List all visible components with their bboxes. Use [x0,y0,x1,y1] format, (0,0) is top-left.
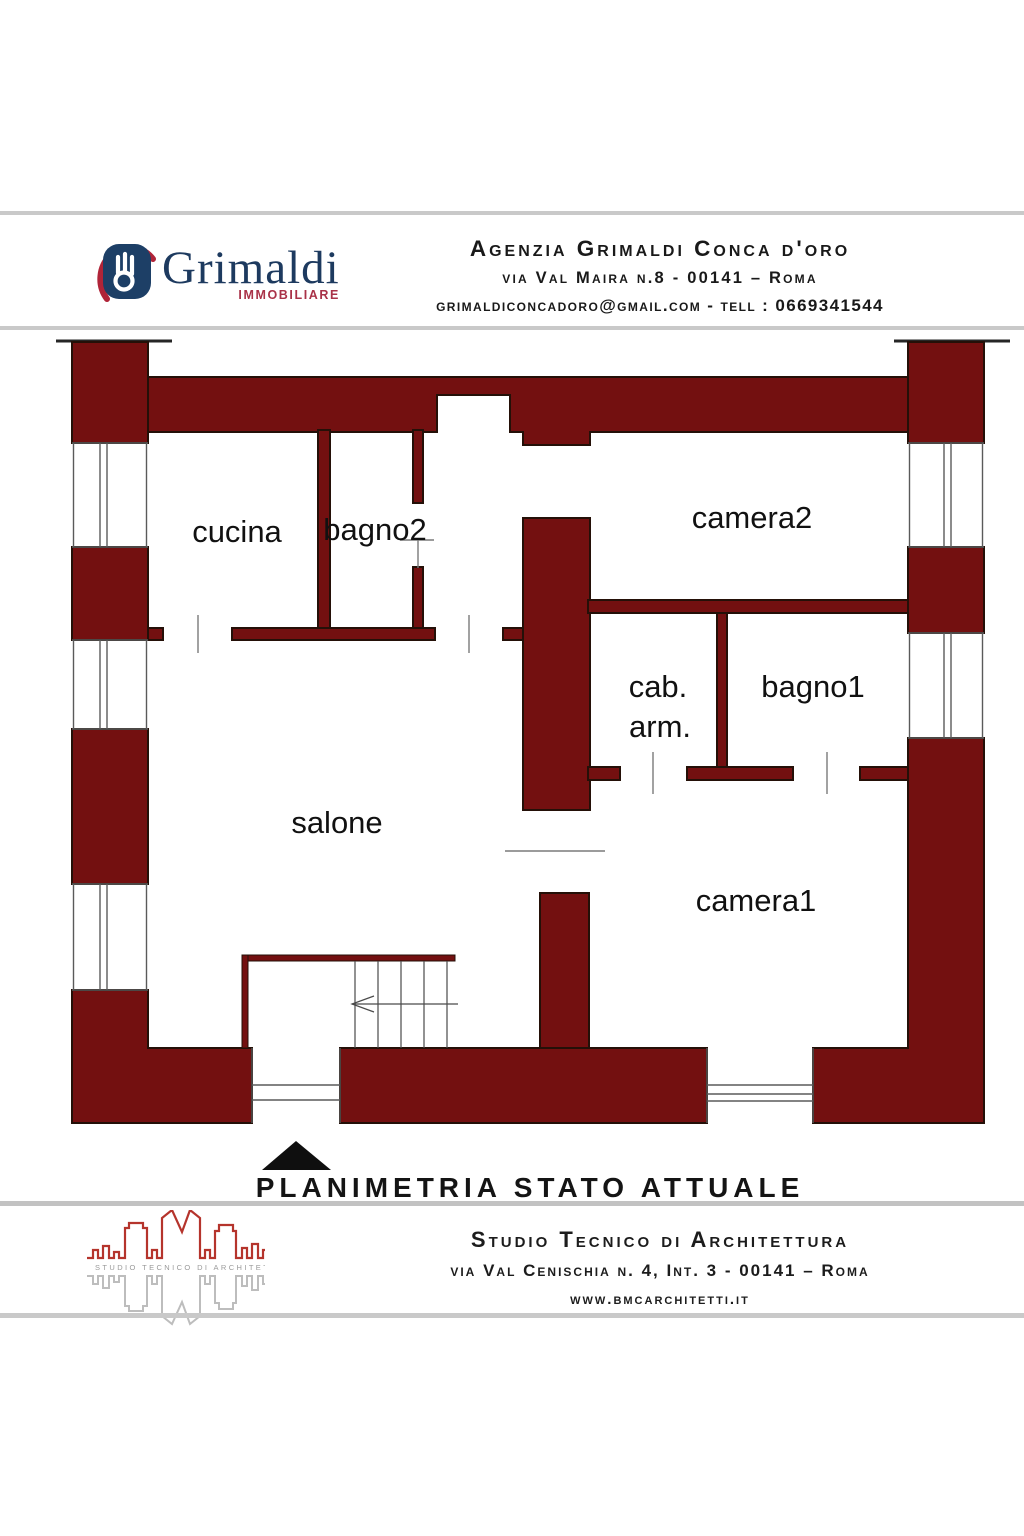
bmc-logo-caption: STUDIO TECNICO DI ARCHITETTURA [95,1263,265,1272]
room-label-salone: salone [291,805,382,840]
room-label-bagno1: bagno1 [761,669,864,704]
stairs [352,961,458,1048]
stair-enclosure-walls [242,955,455,1048]
room-label-arm: arm. [629,709,691,744]
walls [72,342,984,1123]
studio-address: via Val Cenischia n. 4, Int. 3 - 00141 –… [310,1261,1010,1281]
page: Grimaldi IMMOBILIARE Agenzia Grimaldi Co… [0,0,1024,1536]
room-label-cucina: cucina [192,514,282,549]
studio-name: Studio Tecnico di Architettura [310,1227,1010,1253]
studio-website: www.bmcarchitetti.it [310,1291,1010,1308]
room-label-camera2: camera2 [692,500,813,535]
room-label-camera1: camera1 [696,883,817,918]
footer-top-rule [0,1201,1024,1206]
bmc-skyline-red [87,1210,265,1258]
footer-bottom-rule [0,1313,1024,1318]
room-label-bagno2: bagno2 [323,512,426,547]
triangle-marker-icon [262,1141,331,1170]
plan-caption: PLANIMETRIA STATO ATTUALE [36,1172,1024,1204]
room-label-cab: cab. [629,669,688,704]
studio-address-block: Studio Tecnico di Architettura via Val C… [310,1227,1010,1308]
